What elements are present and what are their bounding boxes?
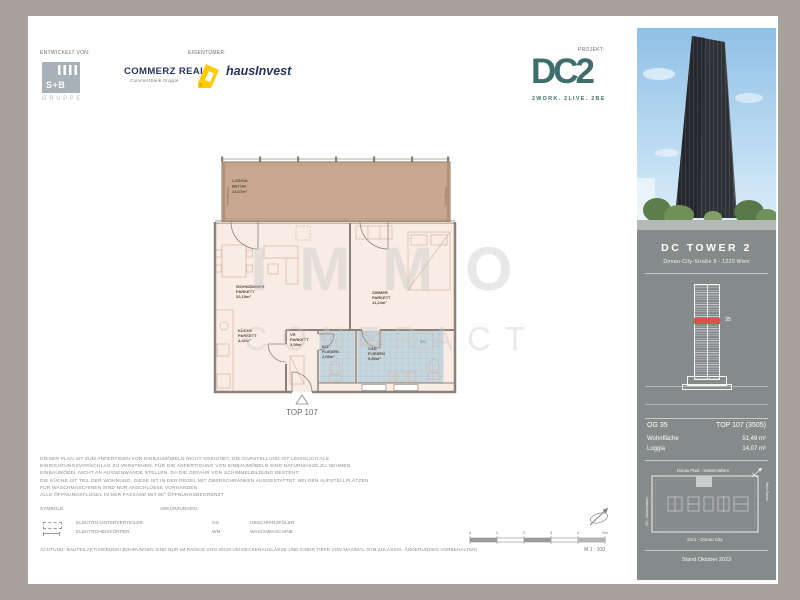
scale-label: M 1 : 100 (584, 547, 605, 553)
symbol-label-1: ELEKTRO-UNTERVERTEILER (76, 521, 143, 526)
scale-tick-4: 4 (577, 530, 580, 535)
loggia-value: 14,07 m² (742, 446, 766, 452)
achtung-note: ACHTUNG: BAUTEILAKTIVIERUNG! BOHRUNGEN S… (40, 547, 477, 552)
floorplan-drawing: LOGGIA BETON 14,07m² Fixverglasung Fixve… (210, 148, 460, 423)
shaft-2 (394, 385, 418, 391)
loggia-label-name: LOGGIA (232, 178, 248, 183)
elevation-highlight-floor (694, 318, 720, 324)
sidebar-panel: DC TOWER 2 Donau-City-Straße 9 - 1220 Wi… (637, 230, 776, 580)
svg-text:5,89m²: 5,89m² (368, 356, 381, 361)
loggia-label-area: 14,07m² (232, 189, 248, 194)
disclaimer-line: EINRICHTUNGSVORSCHLAG ZU VERSTEHEN. FÜR … (40, 463, 369, 470)
site-plan: Donau Platz - Kaisermühlen VIC - Kaiserw… (640, 464, 774, 548)
area-info-row: Wohnfläche 51,49 m² (647, 436, 766, 442)
scale-tick-2: 2 (523, 530, 526, 535)
hausinvest-logo-text: hausInvest (226, 64, 291, 78)
disclaimer-line: EINBAUMÖBEL NICHT AN AUSSENWÄNDE STELLEN… (40, 470, 369, 477)
panel-divider (645, 550, 768, 551)
scale-bar: 0 1 2 3 4 5m M 1 : 100 (464, 528, 614, 556)
glazing-label-right: Fixverglasung (444, 187, 448, 206)
entry-marker (296, 395, 308, 404)
loggia-label-finish: BETON (232, 184, 246, 189)
ground-line (645, 386, 768, 387)
svg-text:11,24m²: 11,24m² (372, 300, 387, 305)
plan-date: Stand Oktober 2023 (637, 557, 776, 563)
building-name: DC TOWER 2 (637, 242, 776, 254)
developed-by-label: ENTWICKELT VON: (40, 50, 90, 56)
ground-line-2 (645, 404, 768, 405)
dc2-tagline: 2WORK. 2LIVE. 2BE (532, 96, 606, 102)
elevation-tower (694, 284, 720, 380)
elevation-floor-number: 35 (725, 317, 731, 323)
sb-gruppe-logo: S+B (42, 62, 80, 93)
unit-value: TOP 107 (3505) (716, 422, 766, 429)
shaft-1 (362, 385, 386, 391)
disclaimer-block: DIESER PLAN IST ZUM ANFERTIGEN VON EINBA… (40, 456, 369, 499)
scale-tick-0: 0 (469, 530, 472, 535)
sb-logo-text: S+B (46, 80, 65, 90)
disclaimer-line: DIE KÜCHE IST TEIL DER WOHNUNG, DIESE IS… (40, 478, 369, 485)
disclaimer-line: DIESER PLAN IST ZUM ANFERTIGEN VON EINBA… (40, 456, 369, 463)
siteplan-label-right: Neue Donau (765, 482, 769, 501)
siteplan-label-left: VIC - Kaiserwasser (645, 496, 649, 526)
commerzbank-gruppe-text: Commerzbank Gruppe (130, 79, 179, 84)
abbr-wm: WM (212, 530, 221, 535)
svg-text:4,43m²: 4,43m² (238, 338, 251, 343)
siteplan-label-top: Donau Platz - Kaisermühlen (677, 468, 730, 473)
svg-text:22,15m²: 22,15m² (236, 294, 252, 299)
glazing-label-left: Fixverglasung (226, 187, 230, 206)
street (637, 220, 776, 230)
elevation-base-step (682, 384, 732, 390)
sb-gruppe-sub: GRUPPE (42, 96, 82, 102)
symbol-label-2: ELEKTROHEIZKÖRPER (76, 530, 130, 535)
abbr-wm-label: WASCHMASCHINE (250, 530, 293, 535)
building-elevation-diagram: 35 (637, 282, 776, 394)
north-arrow-icon (586, 502, 614, 530)
tower-photo (637, 28, 776, 230)
building-address: Donau-City-Straße 9 - 1220 Wien (637, 259, 776, 265)
svg-text:2,05m²: 2,05m² (322, 354, 335, 359)
dc2-logo: DC2 (531, 54, 611, 90)
sb-logo-bars-icon (58, 65, 77, 75)
wm-abbr-on-plan: WM (420, 340, 426, 344)
floor-value: OG 35 (647, 422, 668, 429)
abbr-gs: GS (212, 521, 219, 526)
area-value: 51,49 m² (742, 436, 766, 442)
owner-label: EIGENTÜMER: (188, 50, 226, 56)
panel-divider (645, 273, 768, 274)
loggia-label: Loggia (647, 446, 665, 452)
disclaimer-line: FÜR WASCHMASCHINEN SIND NUR ANSCHLÜSSE V… (40, 485, 369, 492)
panel-divider (645, 418, 768, 419)
symbols-header: SYMBOLE: (40, 507, 65, 512)
symbol-dashed-box-icon (43, 522, 62, 529)
area-label: Wohnfläche (647, 436, 679, 442)
document-frame: ENTWICKELT VON: S+B GRUPPE EIGENTÜMER: C… (0, 0, 800, 600)
scale-tick-1: 1 (496, 530, 499, 535)
siteplan-highlighted-unit (696, 476, 712, 487)
symbol-line-icon (43, 533, 60, 534)
abbreviations-header: ABKÜRZUNGEN: (160, 507, 198, 512)
commerzbank-ribbon-icon (194, 60, 222, 90)
abbr-gs-label: GESCHIRRSPÜLER (250, 521, 295, 526)
unit-info-row: OG 35 TOP 107 (3505) (647, 422, 766, 429)
disclaimer-line: ALLE ÖFFNUNGSFLÜGEL IN DER FASSADE MIT 9… (40, 492, 369, 499)
panel-divider (645, 460, 768, 461)
loggia-glass-facade (221, 157, 450, 162)
scale-tick-5: 5m (602, 530, 608, 535)
loggia-info-row: Loggia 14,07 m² (647, 446, 766, 452)
svg-text:3,08m²: 3,08m² (290, 342, 303, 347)
unit-label: TOP 107 (286, 408, 318, 417)
scale-tick-3: 3 (550, 530, 553, 535)
siteplan-label-bottom: DC1 - Donau City (687, 537, 723, 542)
room-loggia (222, 162, 450, 222)
